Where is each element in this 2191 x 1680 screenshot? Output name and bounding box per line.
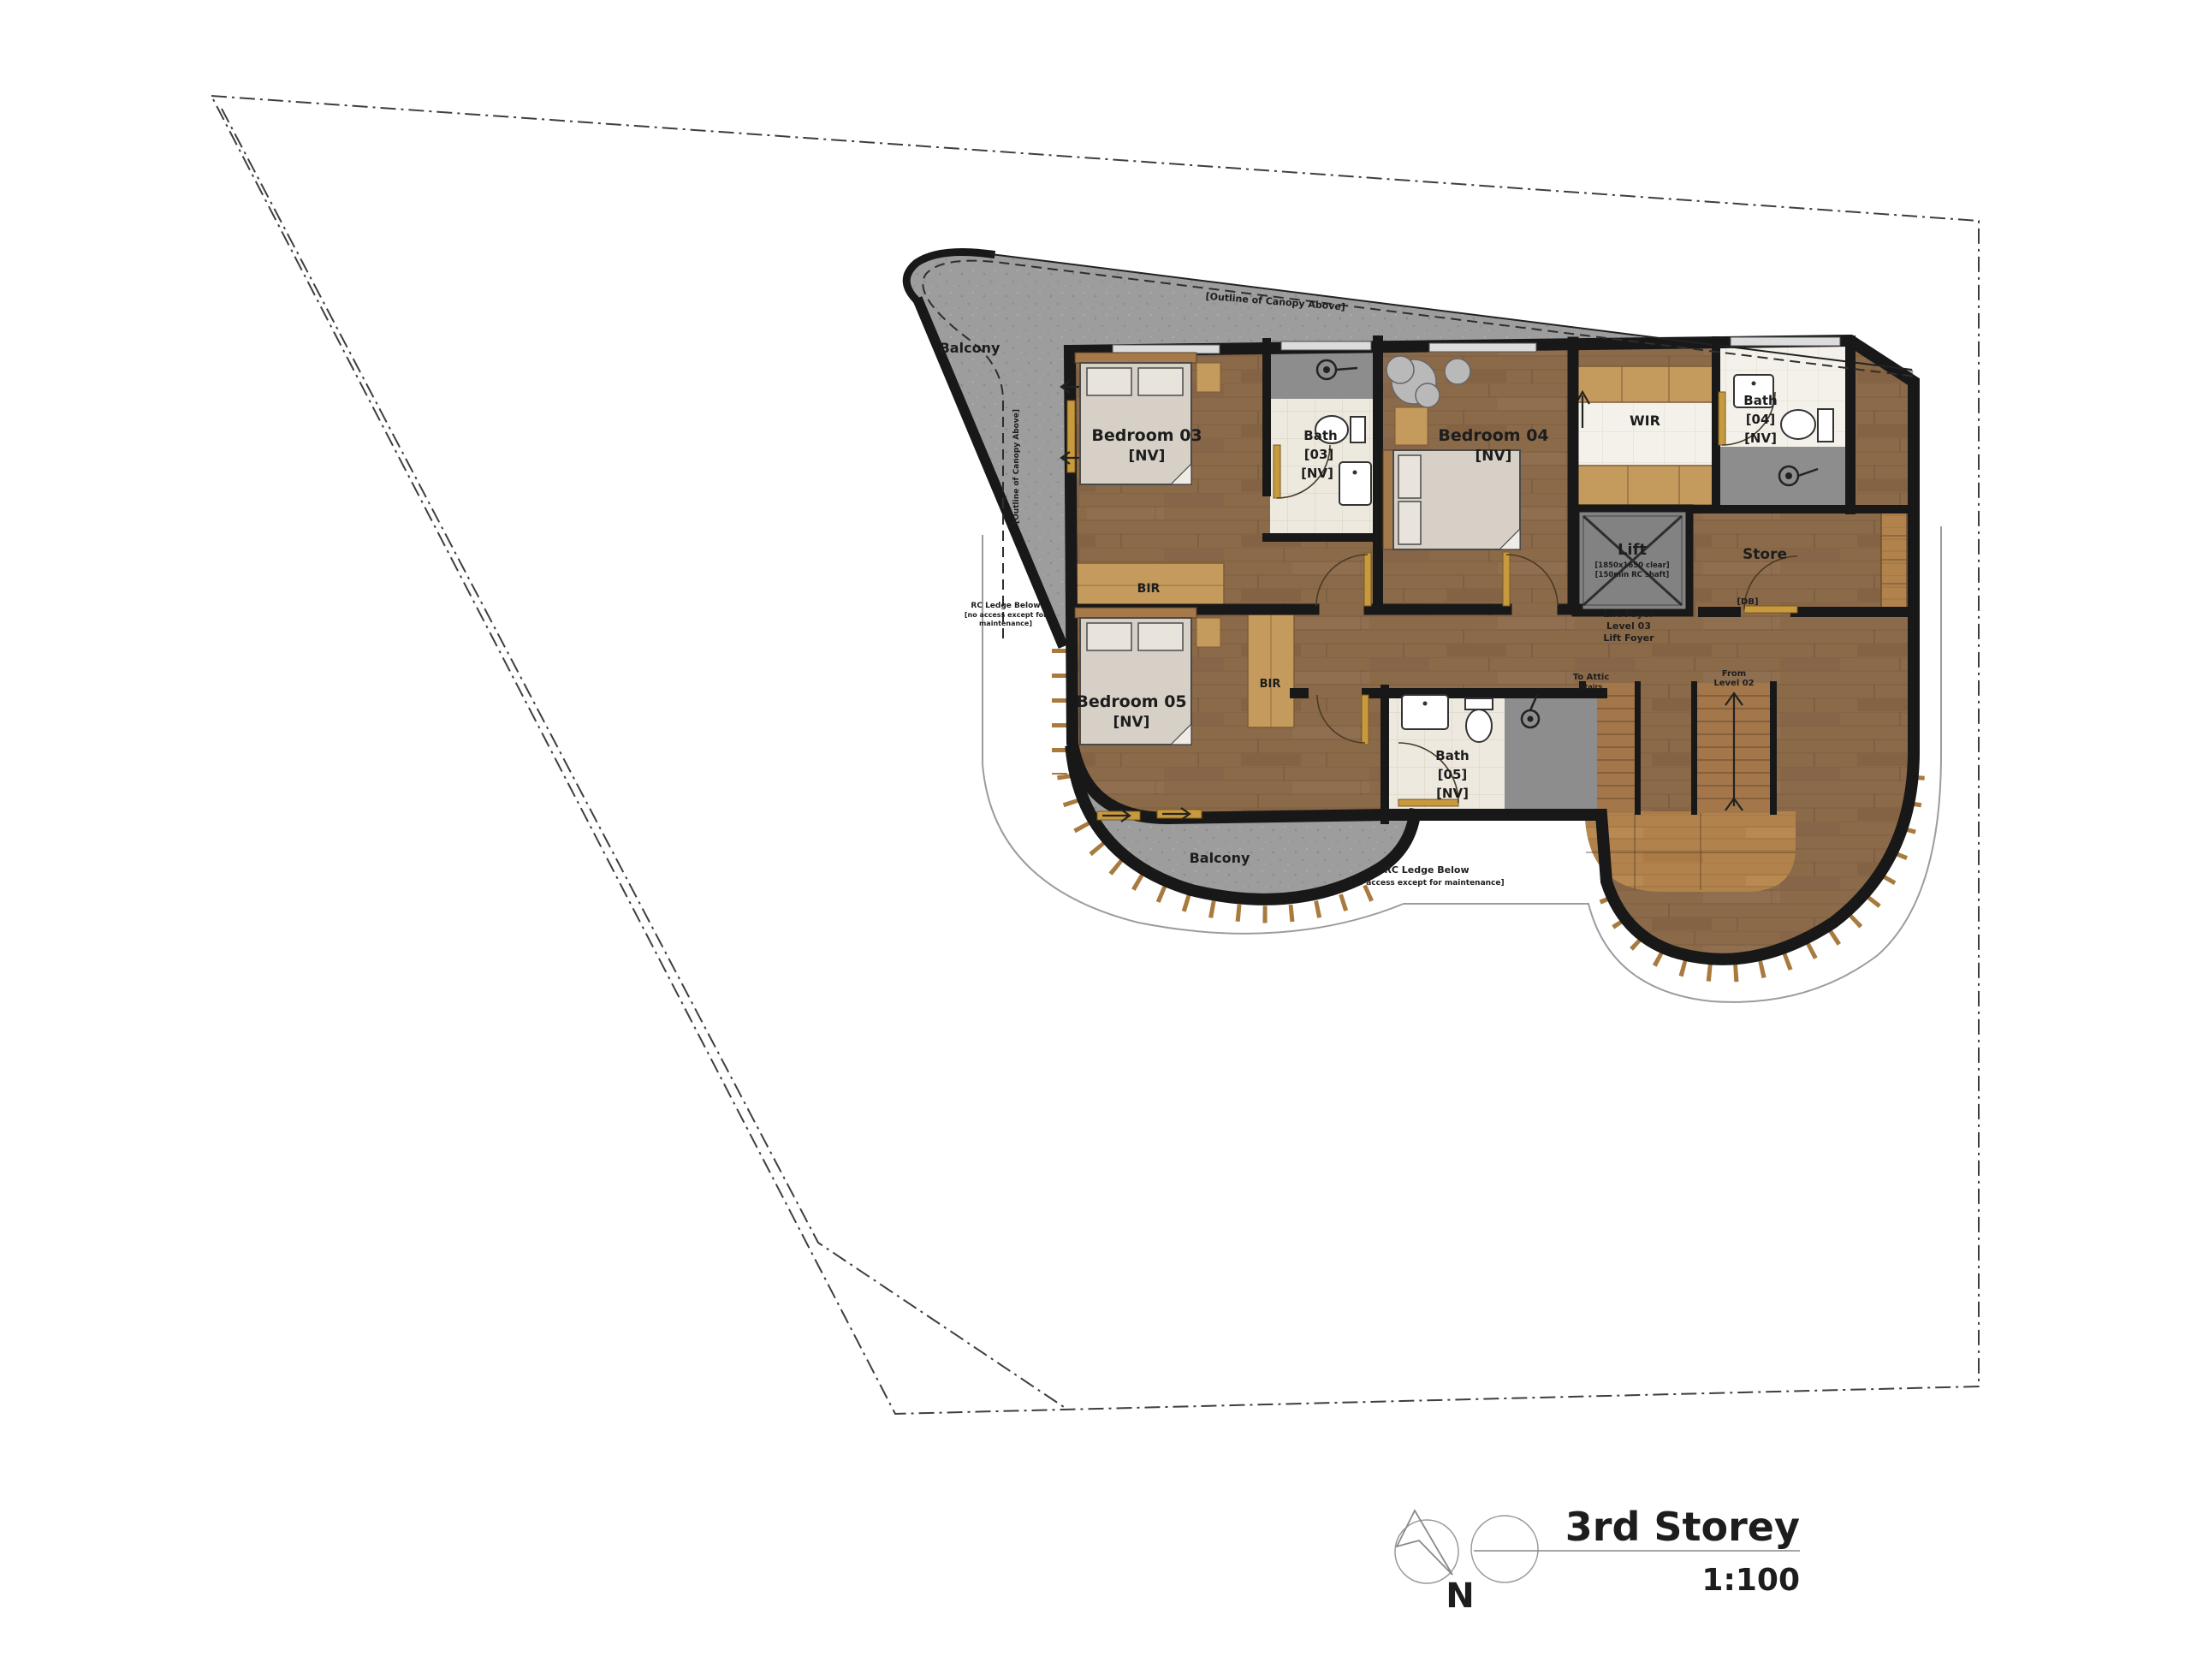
lift-label: Lift [1618,541,1647,559]
bedroom03-nv-label: [NV] [1129,448,1166,465]
bedroom04-label: Bedroom 04 [1438,426,1548,445]
bath03-door-leaf [1274,445,1280,498]
bir-top-label: BIR [1137,582,1161,596]
floor-plan-canvas: Balcony Balcony Bedroom 03 [NV] Bedroom … [0,0,2191,1680]
bath05-label-3: [NV] [1436,786,1469,801]
lift-foyer-label-3: Lift Foyer [1603,632,1654,644]
bath03-label-3: [NV] [1301,466,1333,481]
lift-foyer-label-1: Lift Foyer [1603,608,1654,620]
balcony-door-top-leaf [1067,401,1075,472]
bath03-label-2: [03] [1304,447,1334,462]
bath04-label-2: [04] [1746,412,1776,427]
bath04-label-1: Bath [1743,393,1777,408]
bedroom04-door-leaf [1503,552,1510,606]
to-attic-label-2: Stairs [1580,683,1603,691]
store-door-leaf [1744,606,1797,613]
floor-plan-page: Balcony Balcony Bedroom 03 [NV] Bedroom … [0,0,2191,1680]
lift-note-2: [150min RC shaft] [1595,571,1670,579]
stair-flight-from-level02 [1697,683,1770,813]
rc-ledge-bottom-1: RC Ledge Below [1384,864,1469,876]
north-label: N [1446,1576,1474,1616]
bath04-door-leaf [1719,392,1725,445]
bath03-label-1: Bath [1303,428,1337,443]
title-block: 3rd Storey 1:100 [1474,1504,1800,1598]
bath05-label-1: Bath [1435,748,1469,763]
balcony-bottom-label: Balcony [1190,850,1250,866]
balcony-top-label: Balcony [940,340,1000,356]
north-symbol: N [1395,1511,1538,1616]
rc-ledge-left-2: [no access except for [965,611,1047,619]
lift-foyer-label-2: Level 03 [1606,620,1651,632]
bedroom05-label: Bedroom 05 [1076,692,1186,711]
bedroom03-door-leaf [1364,553,1371,606]
stair-landing [1583,811,1796,892]
bir-wardrobe-bottom [1248,614,1294,727]
toilet-04-icon [1781,409,1833,442]
sink-05-icon [1402,695,1448,729]
toilet-05-icon [1465,698,1493,742]
canopy-note-side: [Outline of Canopy Above] [1012,409,1021,524]
wir-label: WIR [1630,413,1660,429]
wir-room [1576,366,1715,507]
lift-note-1: [1850x1650 clear] [1594,561,1669,570]
bedroom03-label: Bedroom 03 [1091,426,1202,445]
from-level-label-2: Level 02 [1713,679,1754,688]
bedroom05-nv-label: [NV] [1113,714,1150,731]
sink-03-icon [1339,462,1371,505]
scale-label: 1:100 [1701,1563,1800,1598]
bath05-label-2: [05] [1438,767,1468,782]
bath04-label-3: [NV] [1744,430,1777,446]
db-label: [DB] [1737,597,1758,607]
bir-bottom-label: BIR [1260,678,1281,691]
lift-shaft [1576,508,1689,613]
rc-ledge-left-1: RC Ledge Below [971,602,1040,610]
rc-ledge-bottom-2: [no access except for maintenance] [1349,879,1504,887]
page-title: 3rd Storey [1565,1504,1800,1550]
rc-ledge-left-3: maintenance] [979,620,1032,627]
bedroom04-nv-label: [NV] [1476,448,1512,465]
from-level-label-1: From [1722,669,1746,679]
to-attic-label-1: To Attic [1573,673,1610,682]
store-room [1881,512,1907,608]
store-label: Store [1743,546,1787,563]
bedroom05-door-leaf [1362,695,1369,745]
